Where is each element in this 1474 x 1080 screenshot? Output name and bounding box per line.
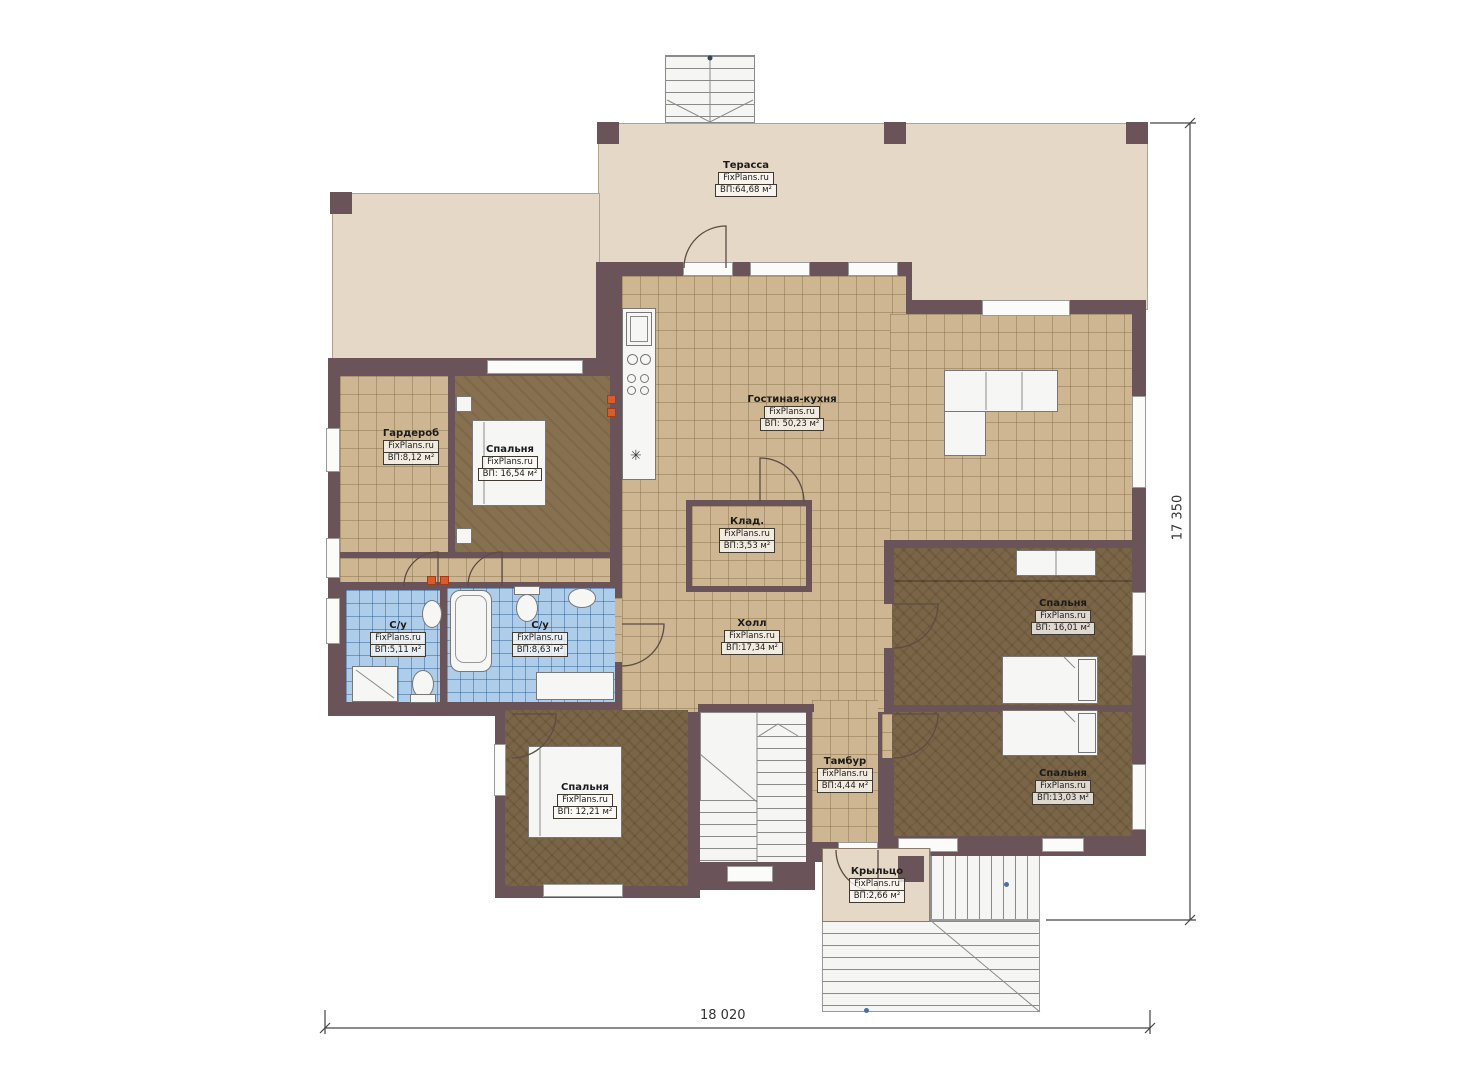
room-label-living-kitchen: Гостиная-кухня FixPlans.ru ВП: 50,23 м²: [707, 394, 877, 431]
terrace-door-opening: [683, 262, 733, 276]
dimension-width: 18 020: [700, 1008, 746, 1023]
stove-burner: [640, 386, 649, 395]
washbasin: [568, 588, 596, 608]
room-label-bedroom-2: Спальня FixPlans.ru ВП: 16,01 м²: [1003, 598, 1123, 635]
stove-burner: [640, 374, 649, 383]
room-area: ВП:64,68 м²: [715, 184, 777, 197]
room-area: ВП: 16,54 м²: [478, 468, 543, 481]
porch-stairs-right: [930, 848, 1040, 920]
toilet-tank: [410, 694, 436, 703]
sink-bowl: [640, 354, 651, 365]
room-name: Спальня: [1039, 598, 1087, 609]
room-label-bedroom-3: Спальня FixPlans.ru ВП:13,03 м²: [1003, 768, 1123, 805]
radiator-dot: [427, 576, 436, 585]
room-area: ВП:13,03 м²: [1032, 792, 1094, 805]
room-name: Тамбур: [824, 756, 866, 767]
window: [1132, 592, 1146, 656]
room-label-porch: Крыльцо FixPlans.ru ВП:2,66 м²: [817, 866, 937, 903]
window: [750, 262, 810, 276]
closet-front-line: [892, 580, 1132, 582]
room-name: Клад.: [730, 516, 764, 527]
radiator-dot: [607, 408, 616, 417]
room-name: Спальня: [1039, 768, 1087, 779]
window: [982, 300, 1070, 316]
fridge-inner: [630, 316, 648, 342]
floor-plan: ✳: [0, 0, 1474, 1080]
sofa-seat: [944, 370, 1058, 412]
bed-pillow: [1078, 659, 1096, 701]
room-name: Терасса: [723, 160, 769, 171]
room-label-bedroom-4: Спальня FixPlans.ru ВП: 12,21 м²: [525, 782, 645, 819]
room-label-bath-2: С/у FixPlans.ru ВП:8,63 м²: [480, 620, 600, 657]
radiator-dot: [607, 395, 616, 404]
room-name: С/у: [389, 620, 407, 631]
room-area: ВП: 50,23 м²: [760, 418, 825, 431]
window: [1132, 764, 1146, 830]
wall-segment: [884, 540, 1132, 548]
corridor-floor: [340, 558, 610, 582]
window: [1132, 396, 1146, 488]
dim-line-bottom: [320, 1023, 1155, 1033]
bed-pillow: [1078, 713, 1096, 753]
window: [494, 744, 506, 796]
terrace-column: [1126, 122, 1148, 144]
window: [1042, 838, 1084, 852]
porch-stairs-bottom: [822, 920, 1040, 1012]
room-area: ВП:3,53 м²: [719, 540, 776, 553]
room-name: Гостиная-кухня: [747, 394, 836, 405]
room-area: ВП:8,63 м²: [512, 644, 569, 657]
window: [848, 262, 898, 276]
room-name: Спальня: [561, 782, 609, 793]
terrace-column: [884, 122, 906, 144]
terrace-column: [330, 192, 352, 214]
room-area: ВП:17,34 м²: [721, 642, 783, 655]
dimension-height: 17 350: [1170, 495, 1185, 541]
washing-machine-symbol: ✳: [630, 448, 642, 464]
radiator-dot: [440, 576, 449, 585]
window: [326, 538, 340, 578]
room-label-tambour: Тамбур FixPlans.ru ВП:4,44 м²: [785, 756, 905, 793]
stove-burner: [627, 374, 636, 383]
stairwell-steps: [700, 800, 757, 862]
nightstand: [456, 528, 472, 544]
window: [487, 360, 583, 374]
stair-post-dot: [864, 1008, 869, 1013]
terrace-stairs: [665, 55, 755, 123]
room-area: ВП:2,66 м²: [849, 890, 906, 903]
room-living-kitchen-right: [890, 314, 1132, 540]
room-area: ВП:5,11 м²: [370, 644, 427, 657]
wardrobe-cabinet: [1016, 550, 1096, 576]
room-name: Спальня: [486, 444, 534, 455]
room-name: Крыльцо: [851, 866, 903, 877]
room-label-terrace: Терасса FixPlans.ru ВП:64,68 м²: [661, 160, 831, 197]
toilet-bowl: [516, 594, 538, 622]
dim-line-right: [1185, 118, 1195, 925]
room-name: С/у: [531, 620, 549, 631]
room-label-hall: Холл FixPlans.ru ВП:17,34 м²: [692, 618, 812, 655]
sink-bowl: [627, 354, 638, 365]
nightstand: [456, 396, 472, 412]
terrace-column: [597, 122, 619, 144]
room-area: ВП: 12,21 м²: [553, 806, 618, 819]
bathroom-cabinet: [536, 672, 614, 700]
window: [727, 866, 773, 882]
terrace-floor: [332, 193, 600, 365]
room-area: ВП: 16,01 м²: [1031, 622, 1096, 635]
window: [326, 428, 340, 472]
room-label-bath-1: С/у FixPlans.ru ВП:5,11 м²: [338, 620, 458, 657]
room-area: ВП:8,12 м²: [383, 452, 440, 465]
stove-burner: [627, 386, 636, 395]
room-area: ВП:4,44 м²: [817, 780, 874, 793]
room-name: Холл: [737, 618, 766, 629]
stairwell-top-wall: [698, 704, 814, 712]
stair-post-dot: [1004, 882, 1009, 887]
window: [543, 884, 623, 897]
room-label-bedroom-1: Спальня FixPlans.ru ВП: 16,54 м²: [450, 444, 570, 481]
room-label-storage: Клад. FixPlans.ru ВП:3,53 м²: [687, 516, 807, 553]
wall-segment: [884, 540, 894, 604]
shower-tray: [352, 666, 398, 702]
room-name: Гардероб: [383, 428, 439, 439]
